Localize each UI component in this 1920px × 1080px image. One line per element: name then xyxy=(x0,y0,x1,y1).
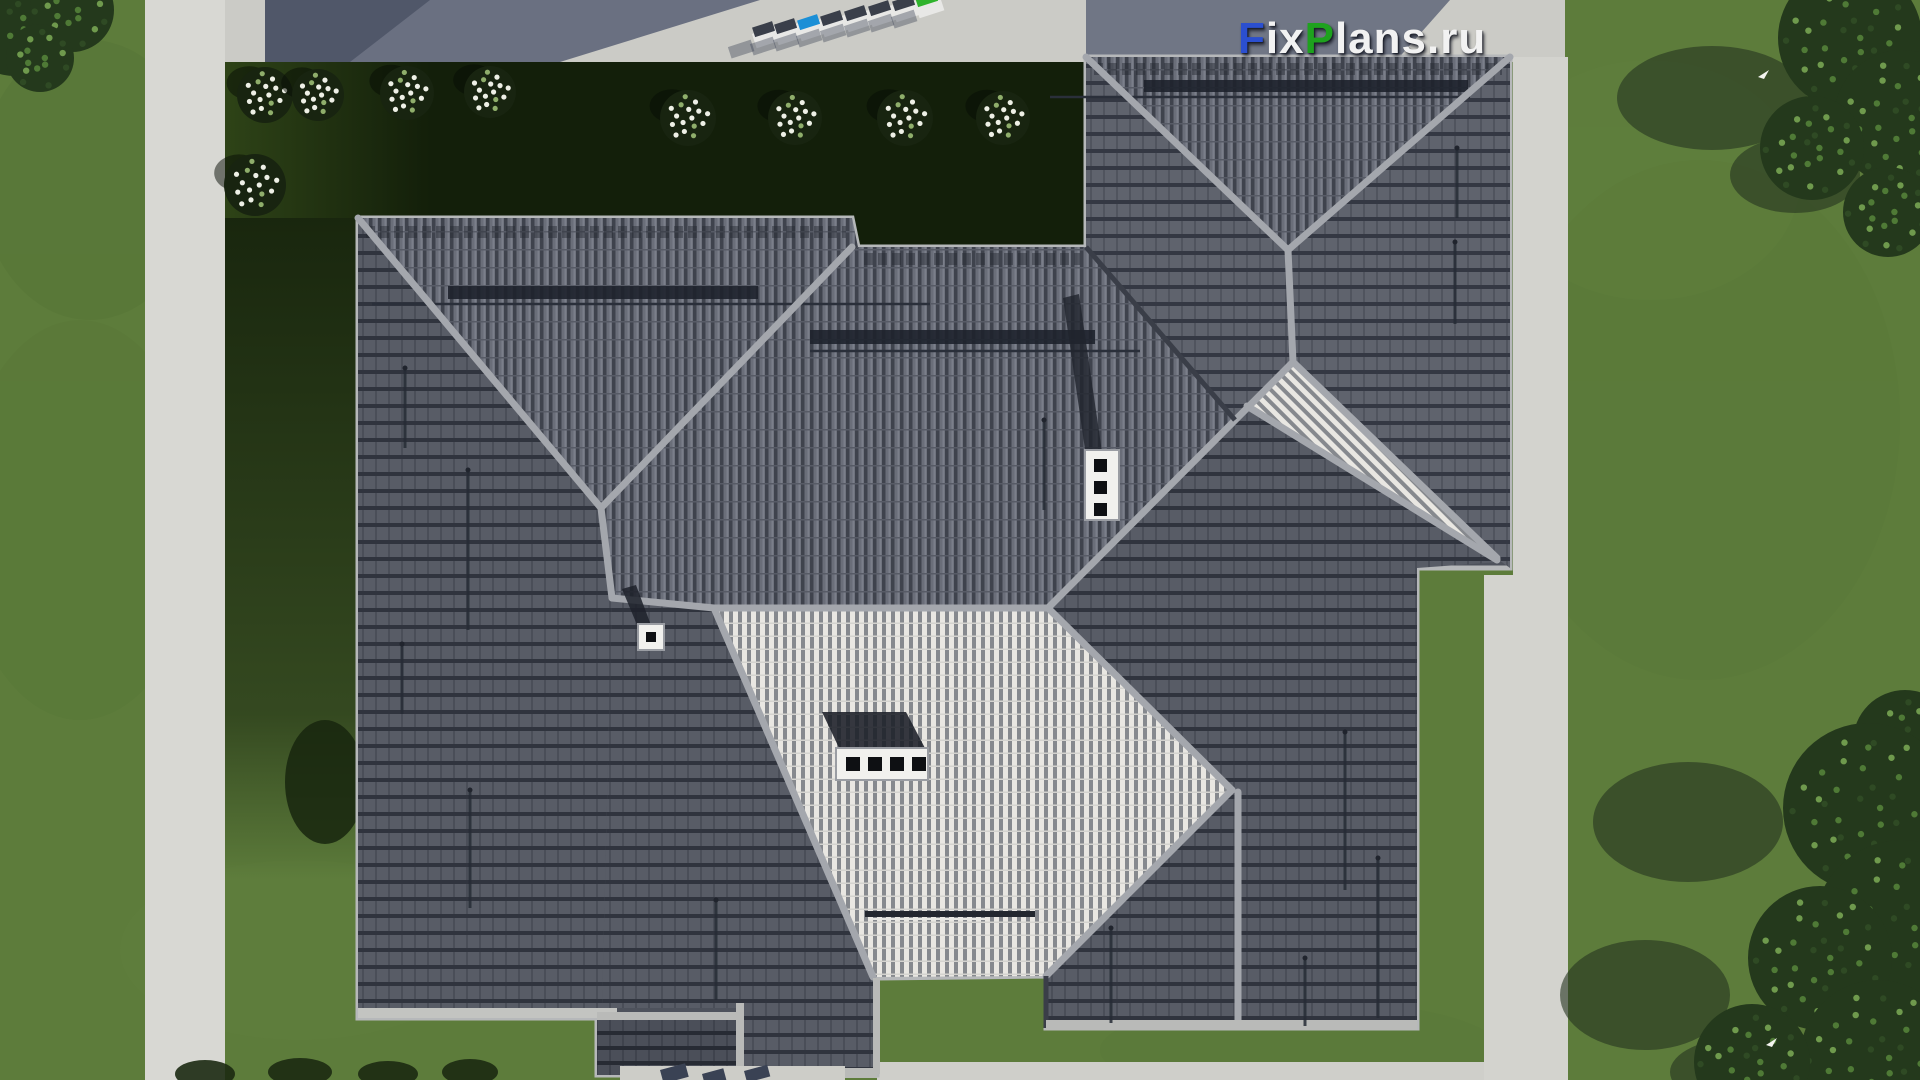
blossom xyxy=(989,113,994,118)
leaf-cluster xyxy=(1886,40,1892,46)
blossom xyxy=(247,187,252,192)
blossom xyxy=(891,113,896,118)
watermark-part-p: P xyxy=(1305,14,1335,63)
blossom xyxy=(682,129,687,134)
leaf-cluster xyxy=(1830,76,1836,82)
snow-rod-hook xyxy=(714,898,719,903)
snow-rod-hook xyxy=(1453,240,1458,245)
leaf-cluster xyxy=(1820,19,1826,25)
leaf-cluster xyxy=(1837,169,1843,175)
leaf-cluster xyxy=(1744,1052,1750,1058)
blossom xyxy=(692,124,697,129)
leaf-cluster xyxy=(1888,174,1894,180)
leaf-cluster xyxy=(1897,1044,1903,1050)
leaf-cluster xyxy=(1859,204,1865,210)
leaf-cluster xyxy=(1757,1059,1763,1065)
snow-rod-hook xyxy=(1376,856,1381,861)
snow-rod xyxy=(715,900,718,1000)
leaf-cluster xyxy=(1811,819,1817,825)
leaf-cluster xyxy=(63,64,69,70)
blossom xyxy=(235,190,240,195)
leaf-cluster xyxy=(1897,182,1903,188)
blossom xyxy=(488,81,493,86)
blossom xyxy=(419,96,424,101)
leaf-cluster xyxy=(1883,154,1889,160)
blossom xyxy=(910,99,915,104)
leaf-cluster xyxy=(1865,744,1871,750)
blossom xyxy=(259,106,264,111)
leaf-cluster xyxy=(1837,149,1843,155)
blossom xyxy=(259,191,264,196)
blossom xyxy=(689,115,694,120)
blossom xyxy=(393,107,398,112)
blossom xyxy=(683,94,688,99)
leaf-cluster xyxy=(24,48,30,54)
leaf-cluster xyxy=(1775,947,1781,953)
leaf-cluster xyxy=(75,15,81,21)
leaf-cluster xyxy=(1896,245,1902,251)
leaf-cluster xyxy=(1910,1000,1916,1006)
leaf-cluster xyxy=(1772,986,1778,992)
leaf-cluster xyxy=(7,8,13,14)
blossom xyxy=(305,91,310,96)
terrace-concrete xyxy=(620,1066,845,1080)
bush-foliage xyxy=(292,69,344,121)
leaf-cluster xyxy=(1811,977,1817,983)
leaf-cluster xyxy=(34,65,40,71)
blossom xyxy=(240,180,245,185)
blossom xyxy=(393,88,398,93)
blossom xyxy=(998,95,1003,100)
right-walkway-lower xyxy=(1484,575,1568,1080)
leaf-cluster xyxy=(1763,147,1769,153)
leaf-cluster xyxy=(1828,126,1834,132)
watermark-logo: FixPlans.ru xyxy=(1238,14,1486,64)
blossom xyxy=(259,202,264,207)
leaf-cluster xyxy=(1904,904,1910,910)
leaf-cluster xyxy=(1821,937,1827,943)
leaf-cluster xyxy=(1912,942,1918,948)
leaf-cluster xyxy=(1892,218,1898,224)
leaf-cluster xyxy=(1880,62,1886,68)
leaf-cluster xyxy=(1812,105,1818,111)
leaf-cluster xyxy=(1817,155,1823,161)
blossom xyxy=(886,106,891,111)
blossom xyxy=(800,100,805,105)
blossom xyxy=(997,128,1002,133)
leaf-cluster xyxy=(1891,209,1897,215)
bush-foliage xyxy=(768,91,822,145)
tree-shadow xyxy=(1593,762,1783,882)
blossom xyxy=(989,132,994,137)
blossom xyxy=(325,86,330,91)
blossom xyxy=(412,75,417,80)
blossom xyxy=(994,103,999,108)
leaf-cluster xyxy=(1812,921,1818,927)
blossom xyxy=(263,84,268,89)
leaf-cluster xyxy=(1805,161,1811,167)
blossom xyxy=(1004,115,1009,120)
blossom xyxy=(506,85,511,90)
snow-rod xyxy=(1344,732,1347,890)
leaf-cluster xyxy=(1827,955,1833,961)
leaf-cluster xyxy=(1800,996,1806,1002)
blossom xyxy=(398,78,403,83)
leaf-cluster xyxy=(1877,805,1883,811)
leaf-cluster xyxy=(1892,952,1898,958)
leaf-cluster xyxy=(1830,836,1836,842)
blossom xyxy=(1019,111,1024,116)
leaf-cluster xyxy=(1860,108,1866,114)
blossom xyxy=(897,120,902,125)
blossom xyxy=(316,84,321,89)
blossom xyxy=(484,102,489,107)
tree-top-right xyxy=(1760,96,1864,200)
snow-rod-hook xyxy=(1109,926,1114,931)
snow-rod-hook xyxy=(1303,956,1308,961)
blossom xyxy=(900,94,905,99)
leaf-cluster xyxy=(1833,787,1839,793)
leaf-cluster xyxy=(1818,62,1824,68)
leaf-cluster xyxy=(1901,193,1907,199)
leaf-cluster xyxy=(1816,1036,1822,1042)
leaf-cluster xyxy=(1781,1006,1787,1012)
leaf-cluster xyxy=(1810,947,1816,953)
leaf-cluster xyxy=(20,15,26,21)
leaf-cluster xyxy=(17,51,23,57)
leaf-cluster xyxy=(1865,924,1871,930)
leaf-cluster xyxy=(1801,784,1807,790)
blossom xyxy=(693,99,698,104)
leaf-cluster xyxy=(1896,774,1902,780)
blossom xyxy=(481,77,486,82)
blossom xyxy=(786,103,791,108)
leaf-cluster xyxy=(42,61,48,67)
leaf-cluster xyxy=(1841,967,1847,973)
blossom xyxy=(264,175,269,180)
leaf-cluster xyxy=(1870,740,1876,746)
leaf-cluster xyxy=(1788,1034,1794,1040)
leaf-cluster xyxy=(1905,962,1911,968)
snow-rod xyxy=(1043,420,1046,510)
render-canvas xyxy=(0,0,1920,1080)
blossom xyxy=(909,124,914,129)
leaf-cluster xyxy=(1790,134,1796,140)
leaf-cluster xyxy=(1856,960,1862,966)
blossom xyxy=(268,110,273,115)
leaf-cluster xyxy=(1857,35,1863,41)
leaf-cluster xyxy=(45,3,51,9)
leaf-cluster xyxy=(1753,1015,1759,1021)
leaf-cluster xyxy=(1887,710,1893,716)
leaf-cluster xyxy=(1840,27,1846,33)
leaf-cluster xyxy=(1909,229,1915,235)
watermark-part-ix: ix xyxy=(1266,14,1305,63)
blossom xyxy=(329,97,334,102)
leaf-cluster xyxy=(1794,116,1800,122)
blossom xyxy=(669,106,674,111)
blossom xyxy=(908,133,913,138)
snow-rod-hook xyxy=(1455,146,1460,151)
leaf-cluster xyxy=(1801,47,1807,53)
leaf-cluster xyxy=(1903,1027,1909,1033)
bush-foliage xyxy=(464,66,516,118)
blossom xyxy=(497,83,502,88)
blossom xyxy=(493,97,498,102)
leaf-cluster xyxy=(1826,1068,1832,1074)
leaf-cluster xyxy=(1853,995,1859,1001)
leaf-cluster xyxy=(59,50,65,56)
leaf-cluster xyxy=(1851,17,1857,23)
leaf-cluster xyxy=(1787,1050,1793,1056)
blossom xyxy=(985,122,990,127)
blossom xyxy=(274,178,279,183)
blossom xyxy=(388,81,393,86)
leaf-cluster xyxy=(1844,123,1850,129)
leaf-cluster xyxy=(1905,699,1911,705)
leaf-cluster xyxy=(20,79,26,85)
blossom xyxy=(917,121,922,126)
snow-rod xyxy=(1454,242,1457,324)
leaf-cluster xyxy=(1860,765,1866,771)
leaf-cluster xyxy=(46,35,52,41)
blossom xyxy=(389,97,394,102)
blossom xyxy=(485,70,490,75)
blossom xyxy=(996,120,1001,125)
leaf-cluster xyxy=(1804,139,1810,145)
leaf-cluster xyxy=(1776,168,1782,174)
blossom xyxy=(410,98,415,103)
blossom xyxy=(793,107,798,112)
blossom xyxy=(234,172,239,177)
blossom xyxy=(402,70,407,75)
leaf-cluster xyxy=(1838,834,1844,840)
blossom xyxy=(400,95,405,100)
leaf-cluster xyxy=(1732,1027,1738,1033)
leaf-cluster xyxy=(1816,796,1822,802)
leaf-cluster xyxy=(1745,1032,1751,1038)
leaf-cluster xyxy=(1823,114,1829,120)
leaf-cluster xyxy=(1868,199,1874,205)
blossom xyxy=(423,86,428,91)
leaf-cluster xyxy=(1833,1022,1839,1028)
blossom xyxy=(301,98,306,103)
leaf-cluster xyxy=(15,1,21,7)
leaf-cluster xyxy=(1842,1,1848,7)
blossom xyxy=(1006,123,1011,128)
blossom xyxy=(266,92,271,97)
leaf-cluster xyxy=(1889,793,1895,799)
leaf-cluster xyxy=(1822,45,1828,51)
leaf-cluster xyxy=(1802,66,1808,72)
leaf-cluster xyxy=(1846,1038,1852,1044)
leaf-cluster xyxy=(1871,140,1877,146)
leaf-cluster xyxy=(1862,241,1868,247)
leaf-cluster xyxy=(1805,27,1811,33)
leaf-cluster xyxy=(42,55,48,61)
blossom xyxy=(257,182,262,187)
snow-rod xyxy=(1110,928,1113,1023)
leaf-cluster xyxy=(1869,784,1875,790)
blossom xyxy=(679,102,684,107)
leaf-cluster xyxy=(1905,858,1911,864)
snow-rod-hook xyxy=(403,366,408,371)
snow-rod xyxy=(404,368,407,448)
blossom xyxy=(300,83,305,88)
leaf-cluster xyxy=(1909,128,1915,134)
blossom xyxy=(248,197,253,202)
blossom xyxy=(257,97,262,102)
blossom xyxy=(796,115,801,120)
blossom xyxy=(261,165,266,170)
blossom xyxy=(903,107,908,112)
leaf-cluster xyxy=(1729,1067,1735,1073)
leaf-cluster xyxy=(1835,817,1841,823)
leaf-cluster xyxy=(1865,944,1871,950)
leaf-cluster xyxy=(1903,63,1909,69)
leaf-cluster xyxy=(1872,184,1878,190)
blossom xyxy=(913,109,918,114)
leaf-cluster xyxy=(1899,862,1905,868)
leaf-cluster xyxy=(1811,86,1817,92)
leaf-cluster xyxy=(1848,1066,1854,1072)
leaf-cluster xyxy=(1875,125,1881,131)
leaf-cluster xyxy=(1858,831,1864,837)
blossom xyxy=(256,79,261,84)
blossom xyxy=(319,92,324,97)
snow-rod-hook xyxy=(1343,730,1348,735)
blossom xyxy=(1006,132,1011,137)
leaf-cluster xyxy=(1841,739,1847,745)
leaf-cluster xyxy=(1871,47,1877,53)
leaf-cluster xyxy=(1886,1055,1892,1061)
blossom xyxy=(691,133,696,138)
blossom xyxy=(686,107,691,112)
blossom xyxy=(700,121,705,126)
leaf-cluster xyxy=(7,33,13,39)
leaf-cluster xyxy=(1883,242,1889,248)
leaf-cluster xyxy=(23,67,29,73)
leaf-cluster xyxy=(1822,187,1828,193)
blossom xyxy=(705,111,710,116)
blossom xyxy=(269,188,274,193)
leaf-cluster xyxy=(1908,115,1914,121)
blossom xyxy=(408,90,413,95)
bush-foliage xyxy=(877,90,933,146)
blossom xyxy=(269,101,274,106)
blossom xyxy=(491,89,496,94)
blossom xyxy=(798,123,803,128)
blossom xyxy=(984,106,989,111)
blossom xyxy=(781,132,786,137)
leaf-cluster xyxy=(1840,758,1846,764)
blossom xyxy=(501,94,506,99)
bush-foliage xyxy=(660,90,716,146)
leaf-cluster xyxy=(1905,726,1911,732)
leaf-cluster xyxy=(1811,842,1817,848)
leaf-cluster xyxy=(1819,769,1825,775)
leaf-cluster xyxy=(1873,9,1879,15)
leaf-cluster xyxy=(1882,188,1888,194)
leaf-cluster xyxy=(1727,1046,1733,1052)
leaf-cluster xyxy=(1783,182,1789,188)
blossom xyxy=(311,97,316,102)
leaf-cluster xyxy=(1903,745,1909,751)
blossom xyxy=(670,122,675,127)
leaf-cluster xyxy=(1870,1018,1876,1024)
right-walkway-upper xyxy=(1513,57,1568,577)
blossom xyxy=(321,109,326,114)
leaf-cluster xyxy=(1780,1063,1786,1069)
leaf-cluster xyxy=(1806,120,1812,126)
blossom xyxy=(1008,100,1013,105)
leaf-cluster xyxy=(1792,965,1798,971)
blossom xyxy=(776,106,781,111)
watermark-part-f: F xyxy=(1238,14,1266,63)
blossom xyxy=(790,95,795,100)
leaf-cluster xyxy=(1879,77,1885,83)
leaf-cluster xyxy=(1812,132,1818,138)
blossom xyxy=(472,80,477,85)
leaf-cluster xyxy=(1822,900,1828,906)
snow-rod xyxy=(469,790,472,908)
leaf-cluster xyxy=(1891,915,1897,921)
blossom xyxy=(811,111,816,116)
blossom xyxy=(260,71,265,76)
leaf-cluster xyxy=(54,13,60,19)
blossom xyxy=(1011,109,1016,114)
leaf-cluster xyxy=(1874,100,1880,106)
leaf-cluster xyxy=(1822,865,1828,871)
leaf-cluster xyxy=(65,20,71,26)
leaf-cluster xyxy=(1911,811,1917,817)
blossom xyxy=(476,105,481,110)
leaf-cluster xyxy=(1895,4,1901,10)
leaf-cluster xyxy=(1816,145,1822,151)
blossom xyxy=(896,102,901,107)
snow-rod xyxy=(1377,858,1380,1018)
tree-top-left xyxy=(6,24,74,92)
watermark-part-lans: lans xyxy=(1335,14,1427,63)
leaf-cluster xyxy=(1895,83,1901,89)
leaf-cluster xyxy=(60,40,66,46)
leaf-cluster xyxy=(1715,1053,1721,1059)
leaf-cluster xyxy=(1697,1061,1703,1067)
blossom xyxy=(304,108,309,113)
snow-rod-hook xyxy=(400,642,405,647)
leaf-cluster xyxy=(1874,876,1880,882)
leaf-cluster xyxy=(1837,912,1843,918)
leaf-cluster xyxy=(1896,1009,1902,1015)
leaf-cluster xyxy=(79,41,85,47)
leaf-cluster xyxy=(1901,1068,1907,1074)
leaf-cluster xyxy=(1790,939,1796,945)
leaf-cluster xyxy=(1874,857,1880,863)
leaf-cluster xyxy=(1869,215,1875,221)
blossom xyxy=(680,120,685,125)
leaf-cluster xyxy=(1899,714,1905,720)
leaf-cluster xyxy=(1762,937,1768,943)
leaf-cluster xyxy=(1888,755,1894,761)
leaf-cluster xyxy=(1830,1047,1836,1053)
leaf-cluster xyxy=(1868,25,1874,31)
leaf-cluster xyxy=(1852,1012,1858,1018)
leaf-cluster xyxy=(1765,1025,1771,1031)
leaf-cluster xyxy=(92,26,98,32)
blossom xyxy=(781,113,786,118)
blossom xyxy=(246,83,251,88)
leaf-cluster xyxy=(1791,152,1797,158)
